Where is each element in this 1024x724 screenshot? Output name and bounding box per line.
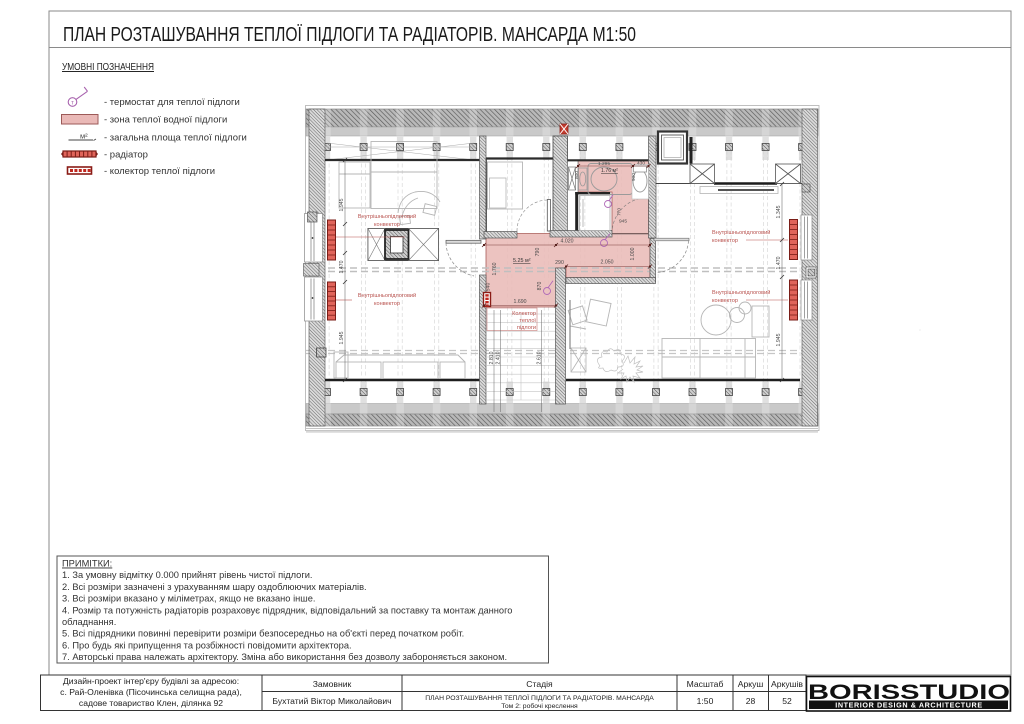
svg-text:- радіатор: - радіатор [104,150,148,161]
svg-text:1.945: 1.945 [776,333,782,346]
svg-text:Внутрішньопідлоговий: Внутрішньопідлоговий [358,292,416,299]
svg-text:3. Всі розміри вказано у мілім: 3. Всі розміри вказано у міліметрах, якщ… [62,594,315,604]
svg-text:870: 870 [537,282,543,291]
svg-text:INTERIOR DESIGN & ARCHITECTURE: INTERIOR DESIGN & ARCHITECTURE [835,701,983,710]
svg-text:5.25 м²: 5.25 м² [513,258,531,264]
svg-text:Аркуш: Аркуш [738,679,764,689]
svg-text:1.000: 1.000 [630,247,636,260]
svg-text:1.760: 1.760 [492,262,498,275]
svg-text:Бухтатий Віктор Миколайович: Бухтатий Віктор Миколайович [272,696,391,706]
svg-text:- загальна площа теплої підлог: - загальна площа теплої підлоги [104,133,247,144]
svg-text:2.610: 2.610 [537,351,543,364]
svg-text:945: 945 [619,219,627,225]
svg-text:конвектор: конвектор [712,298,738,304]
svg-text:Внутрішньопідлоговий: Внутрішньопідлоговий [712,289,770,296]
svg-text:800: 800 [574,171,580,179]
svg-text:2. Всі розміри зазначені з ура: 2. Всі розміри зазначені з урахуванням ш… [62,582,367,592]
svg-text:1:50: 1:50 [697,696,714,706]
svg-text:1. За умовну відмітку 0.000 пр: 1. За умовну відмітку 0.000 прийнят ріве… [62,570,312,580]
svg-text:конвектор: конвектор [712,238,738,244]
svg-text:6. Про будь які припущення та: 6. Про будь які припущення та розбіжност… [62,640,352,650]
svg-text:790: 790 [535,248,541,257]
svg-text:1.470: 1.470 [776,256,782,269]
svg-text:900: 900 [631,173,637,181]
svg-text:430: 430 [637,161,645,167]
svg-text:Внутрішньопідлоговий: Внутрішньопідлоговий [712,229,770,236]
svg-text:2.050: 2.050 [601,260,614,266]
svg-text:- зона теплої водної підлоги: - зона теплої водної підлоги [104,115,227,126]
svg-text:1.470: 1.470 [339,260,345,273]
svg-text:4.020: 4.020 [561,239,574,245]
svg-text:Аркушів: Аркушів [771,679,803,689]
svg-text:540: 540 [486,283,492,292]
svg-text:28: 28 [746,696,756,706]
svg-text:садове товариство Клен, ділянк: садове товариство Клен, ділянка 92 [79,698,223,708]
svg-text:с. Рай-Оленівка (Пісочинська с: с. Рай-Оленівка (Пісочинська селищна рад… [60,687,242,697]
svg-text:Стадія: Стадія [526,679,553,689]
svg-text:2.810: 2.810 [489,351,495,364]
svg-text:1.690: 1.690 [514,299,527,305]
svg-text:підлоги: підлоги [517,325,536,331]
svg-text:1.945: 1.945 [339,331,345,344]
svg-text:2.410: 2.410 [496,351,502,364]
svg-text:5. Всі підрядники повинні пере: 5. Всі підрядники повинні перевірити роз… [62,629,464,639]
svg-text:Дизайн-проект інтер'єру будівл: Дизайн-проект інтер'єру будівлі за адрес… [63,676,239,686]
svg-text:Масштаб: Масштаб [687,679,724,689]
svg-text:ПЛАН РОЗТАШУВАННЯ ТЕПЛОЇ ПІДЛО: ПЛАН РОЗТАШУВАННЯ ТЕПЛОЇ ПІДЛОГИ ТА РАДІ… [63,23,636,46]
svg-text:Колектор: Колектор [512,311,536,317]
svg-text:1.76 м²: 1.76 м² [601,168,618,174]
svg-text:ПРИМІТКИ:: ПРИМІТКИ: [62,559,112,569]
svg-text:- термостат для теплої підлоги: - термостат для теплої підлоги [104,97,240,108]
svg-text:1.345: 1.345 [776,205,782,218]
svg-text:конвектор: конвектор [374,301,400,307]
svg-text:конвектор: конвектор [374,222,400,228]
svg-text:обладнання.: обладнання. [62,617,116,627]
svg-text:770: 770 [617,208,623,216]
svg-text:Том 2: робочі креслення: Том 2: робочі креслення [501,702,578,710]
svg-text:т: т [71,100,74,106]
svg-text:теплої: теплої [519,318,536,324]
svg-text:Замовник: Замовник [313,679,352,689]
svg-text:52: 52 [782,696,792,706]
svg-text:УМОВНІ ПОЗНАЧЕННЯ: УМОВНІ ПОЗНАЧЕННЯ [62,62,154,73]
svg-text:290: 290 [555,260,564,266]
svg-text:- колектор теплої підлоги: - колектор теплої підлоги [104,166,215,177]
svg-text:7. Авторські права належать ар: 7. Авторські права належать архітектору.… [62,652,507,662]
svg-text:Внутрішньопідлоговий: Внутрішньопідлоговий [358,213,416,220]
svg-text:м²: м² [80,132,88,141]
svg-text:1.295: 1.295 [598,161,610,167]
svg-text:4. Розмір та потужність радіа: 4. Розмір та потужність радіаторів розра… [62,605,512,615]
svg-text:1.945: 1.945 [339,198,345,211]
svg-text:ПЛАН РОЗТАШУВАННЯ ТЕПЛОЇ ПІДЛО: ПЛАН РОЗТАШУВАННЯ ТЕПЛОЇ ПІДЛОГИ ТА РАДІ… [425,694,654,702]
